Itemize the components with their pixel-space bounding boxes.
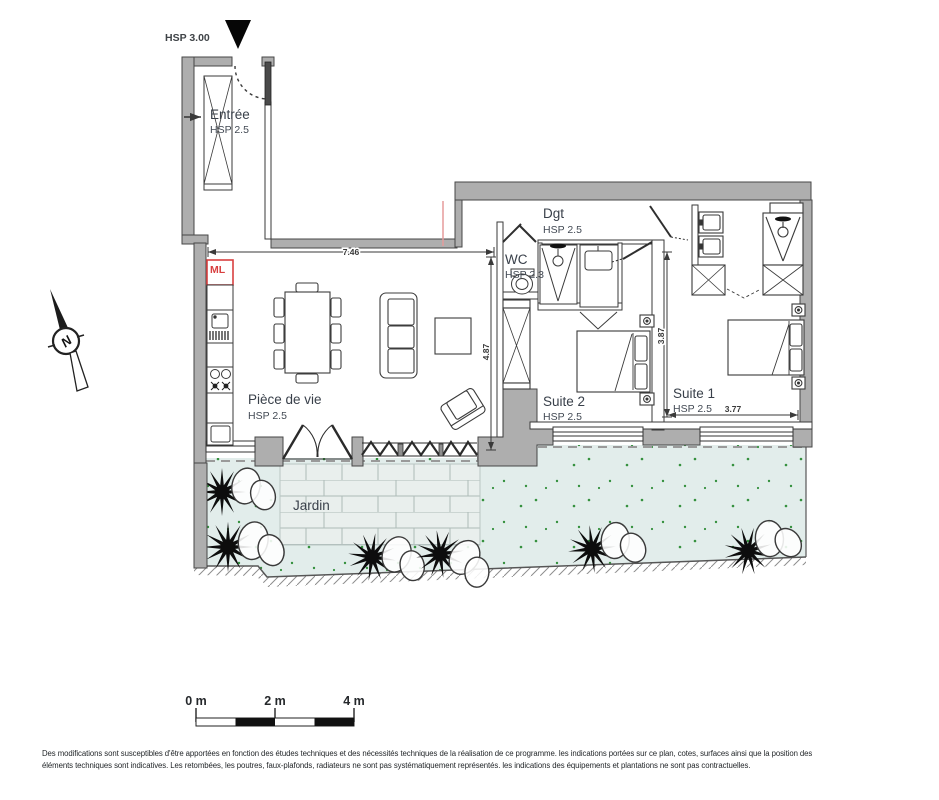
dim-living-width: 7.46 [343,247,360,257]
floor-plan-drawing: Jardin [0,0,939,800]
dim-living-depth: 4.87 [481,343,491,360]
entrance-door-swing [235,66,268,99]
suite1-wardrobes [692,265,803,295]
disclaimer-text: Des modifications sont susceptibles d'êt… [42,748,932,772]
room-hsp-entree: HSP 2.5 [210,124,249,136]
suite1-door-swing [727,289,761,298]
suite1-shower [763,203,803,265]
room-label-entree: Entrée [210,107,250,122]
room-hsp-piece-de-vie: HSP 2.5 [248,410,287,422]
disclaimer-line-2: éléments techniques sont indicatives. Le… [42,760,932,772]
bath-door [580,312,617,329]
suite1-fixtures [692,203,805,389]
living-furniture [274,283,487,431]
scale-label-4: 4 m [343,694,365,708]
kitchen-units [207,260,233,445]
room-label-dgt: Dgt [543,206,564,221]
sofa [380,293,417,378]
dim-suites-depth: 3.87 [656,327,666,344]
ceiling-height-marker: HSP 3.00 [165,32,210,44]
room-hsp-suite1: HSP 2.5 [673,403,712,415]
entrance-marker-triangle [225,20,251,49]
garden-doors [283,425,477,459]
washing-machine-label: ML [210,264,226,276]
room-label-suite2: Suite 2 [543,394,585,409]
room-label-piece-de-vie: Pièce de vie [248,392,322,407]
dim-suite1-width: 3.77 [725,404,742,414]
room-hsp-dgt: HSP 2.5 [543,224,582,236]
entrance [184,20,271,190]
room-label-wc: WC [505,252,528,267]
north-compass: N [48,289,88,391]
scale-bar: 0 m 2 m 4 m [185,694,365,726]
room-hsp-wc: HSP 2.3 [505,269,544,281]
armchair [439,387,486,431]
room-hsp-suite2: HSP 2.5 [543,411,582,423]
suite2-furniture [503,300,654,405]
scale-label-2: 2 m [264,694,286,708]
room-label-suite1: Suite 1 [673,386,715,401]
dining-table-set [274,283,341,383]
suite2-bathroom [540,244,618,330]
scale-label-0: 0 m [185,694,207,708]
garden-area: Jardin [194,445,810,598]
disclaimer-line-1: Des modifications sont susceptibles d'êt… [42,748,932,760]
coffee-table [435,318,471,354]
room-label-jardin: Jardin [293,498,330,513]
suite2-wardrobe [503,300,530,389]
entrance-door-leaf [265,62,271,105]
suite1-basins [699,212,723,257]
floor-plan-page: Jardin [0,0,939,800]
